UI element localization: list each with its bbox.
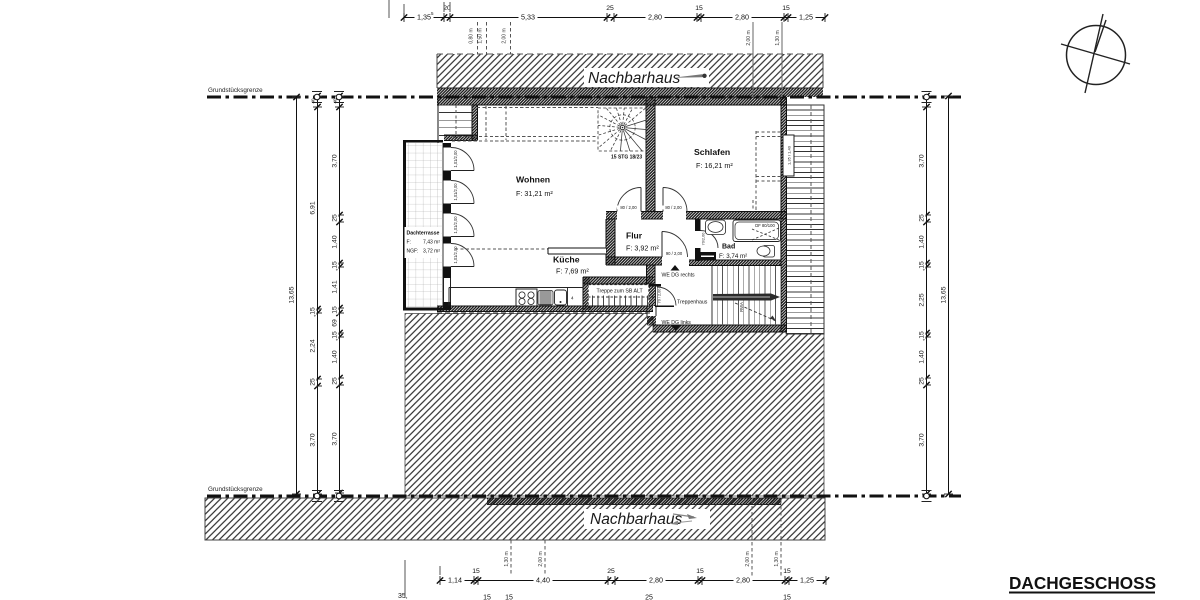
svg-text:7,43 m²: 7,43 m² [423, 240, 440, 246]
svg-text:DF 80/100: DF 80/100 [755, 223, 775, 228]
svg-text:3,72 m²: 3,72 m² [423, 249, 440, 255]
svg-text:15: 15 [472, 568, 480, 575]
svg-text:Wohnen: Wohnen [516, 175, 550, 185]
svg-text:90 / 2,00: 90 / 2,00 [666, 251, 683, 256]
svg-text:2,00 m: 2,00 m [538, 551, 544, 566]
svg-text:15: 15 [505, 595, 513, 600]
svg-text:25: 25 [332, 214, 339, 222]
svg-text:NGF:: NGF: [407, 249, 419, 255]
svg-text:15: 15 [919, 261, 926, 269]
svg-text:1,14: 1,14 [448, 576, 462, 585]
svg-text:Nachbarhaus: Nachbarhaus [588, 70, 680, 87]
svg-text:25: 25 [645, 595, 653, 600]
svg-text:80 / 2,00: 80 / 2,00 [620, 205, 637, 210]
svg-text:Dachterrasse: Dachterrasse [407, 231, 440, 237]
svg-text:3,70: 3,70 [310, 433, 317, 446]
svg-text:35,: 35, [398, 593, 408, 600]
svg-text:2,24: 2,24 [310, 339, 317, 352]
svg-text:70 / 2,00: 70 / 2,00 [657, 289, 661, 304]
svg-text:Küche: Küche [553, 255, 580, 265]
svg-text:1,25: 1,25 [800, 576, 814, 585]
svg-text:Grundstücksgrenze: Grundstücksgrenze [208, 87, 263, 94]
svg-text:25: 25 [607, 568, 615, 575]
svg-text:Nachbarhaus: Nachbarhaus [590, 511, 682, 528]
svg-text:F: 3,92 m²: F: 3,92 m² [626, 244, 659, 253]
svg-text:15: 15 [483, 595, 491, 600]
svg-text:25: 25 [332, 377, 339, 385]
svg-text:Flur: Flur [626, 231, 643, 241]
svg-text:F: 3,74 m²: F: 3,74 m² [719, 253, 747, 260]
svg-text:2,00 m: 2,00 m [745, 551, 751, 566]
svg-text:WE DG links: WE DG links [662, 320, 692, 326]
svg-text:3,70: 3,70 [919, 433, 926, 446]
svg-text:2,00 m: 2,00 m [501, 28, 507, 43]
svg-text:2,80: 2,80 [735, 13, 749, 22]
svg-text:Schlafen: Schlafen [694, 147, 730, 157]
svg-text:1,50 m: 1,50 m [478, 28, 484, 43]
svg-text:1,35 / 1,40: 1,35 / 1,40 [786, 145, 791, 165]
svg-text:15: 15 [310, 307, 317, 315]
svg-text:15: 15 [695, 5, 703, 12]
svg-text:Treppe zum SB ALT: Treppe zum SB ALT [597, 288, 644, 294]
svg-text:F: 16,21 m²: F: 16,21 m² [696, 161, 733, 170]
svg-text:2,80: 2,80 [736, 576, 750, 585]
svg-text:1,30 m: 1,30 m [504, 551, 510, 566]
svg-text:1,40: 1,40 [919, 350, 926, 363]
svg-text:0,80 m: 0,80 m [469, 28, 475, 43]
svg-text:2,00 m: 2,00 m [746, 30, 752, 45]
svg-text:1,25: 1,25 [799, 13, 813, 22]
svg-text:WE DG rechts: WE DG rechts [662, 273, 696, 279]
svg-text:1,01/2,00: 1,01/2,00 [453, 150, 458, 168]
svg-text:1,01/2,00: 1,01/2,00 [453, 183, 458, 201]
svg-text:69: 69 [332, 319, 339, 327]
svg-text:70/2,00: 70/2,00 [702, 233, 706, 246]
svg-text:6,91: 6,91 [310, 201, 317, 214]
svg-text:80 / 2,00: 80 / 2,00 [665, 205, 682, 210]
svg-text:4,40: 4,40 [536, 576, 550, 585]
svg-text:DACHGESCHOSS: DACHGESCHOSS [1009, 573, 1156, 593]
svg-text:5,33: 5,33 [521, 13, 535, 22]
svg-text:15: 15 [919, 331, 926, 339]
svg-text:13,65: 13,65 [941, 286, 948, 303]
svg-text:F: 7,69 m²: F: 7,69 m² [556, 267, 589, 276]
svg-text:15: 15 [783, 595, 791, 600]
svg-text:1,01/2,00: 1,01/2,00 [453, 216, 458, 234]
svg-text:RWA: RWA [739, 302, 744, 312]
svg-text:Grundstücksgrenze: Grundstücksgrenze [208, 486, 263, 493]
svg-text:1,40: 1,40 [919, 235, 926, 248]
svg-text:3,70: 3,70 [332, 432, 339, 445]
svg-text:F:: F: [407, 240, 411, 246]
svg-text:25: 25 [919, 214, 926, 222]
svg-text:3,70: 3,70 [919, 154, 926, 167]
svg-text:1,30 m: 1,30 m [774, 551, 780, 566]
svg-text:1,40: 1,40 [332, 350, 339, 363]
svg-text:2,80: 2,80 [648, 13, 662, 22]
svg-text:1,30 m: 1,30 m [775, 30, 781, 45]
svg-text:1,40: 1,40 [332, 235, 339, 248]
svg-text:F: 31,21 m²: F: 31,21 m² [516, 189, 553, 198]
svg-text:Treppenhaus: Treppenhaus [677, 300, 708, 306]
svg-text:15: 15 [783, 568, 791, 575]
svg-text:2,80: 2,80 [649, 576, 663, 585]
svg-text:1,41: 1,41 [332, 280, 339, 293]
svg-text:25: 25 [310, 378, 317, 386]
svg-text:Bad: Bad [722, 244, 735, 251]
svg-text:1,35: 1,35 [417, 13, 431, 22]
svg-text:25: 25 [919, 377, 926, 385]
svg-text:2,25: 2,25 [919, 293, 926, 306]
svg-text:3,70: 3,70 [332, 154, 339, 167]
svg-text:25: 25 [606, 5, 614, 12]
svg-text:15: 15 [782, 5, 790, 12]
svg-text:15: 15 [696, 568, 704, 575]
svg-text:15: 15 [332, 331, 339, 339]
svg-text:13,65: 13,65 [289, 286, 296, 303]
svg-text:15: 15 [332, 306, 339, 314]
svg-text:15 STG 18/23: 15 STG 18/23 [611, 155, 642, 161]
svg-text:15: 15 [332, 261, 339, 269]
svg-text:1,01/2,00: 1,01/2,00 [453, 246, 458, 264]
